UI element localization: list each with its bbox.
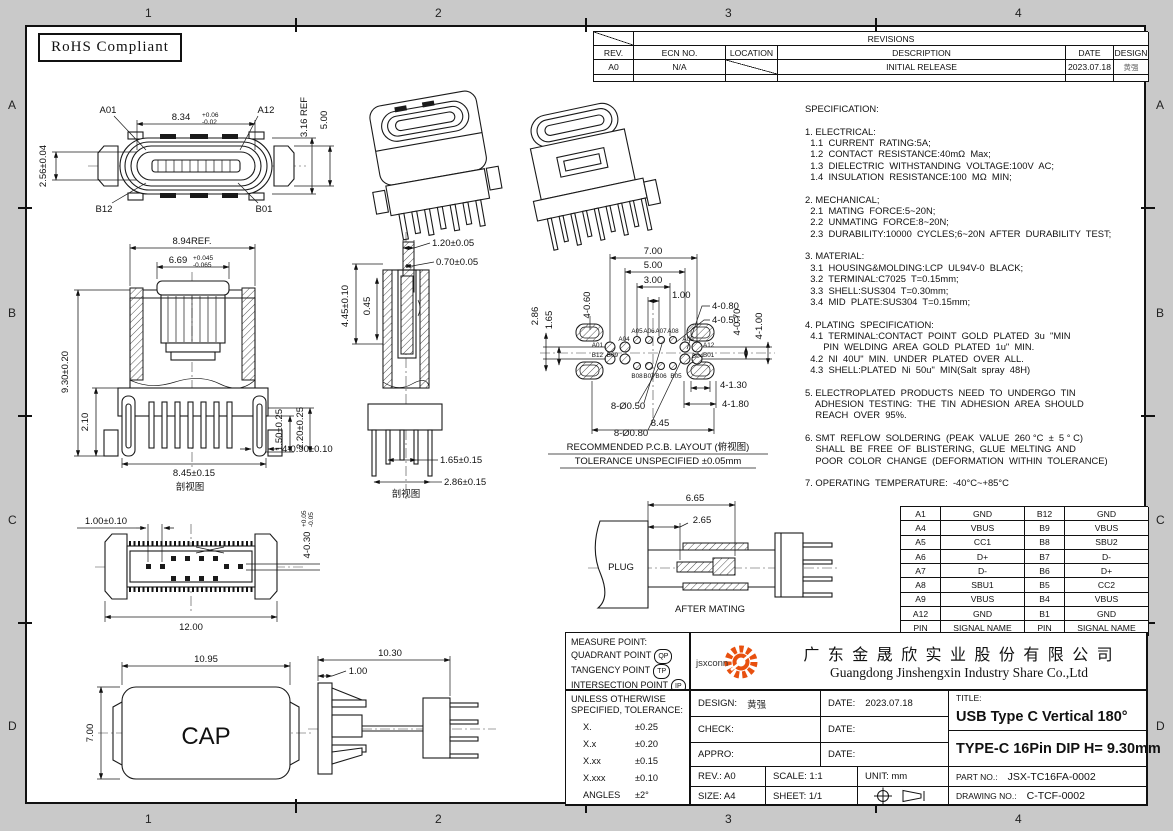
drawing-title-line1: USB Type C Vertical 180° (956, 709, 1128, 725)
date1-label: DATE: (828, 698, 855, 709)
title-label-cell: TITLE: (948, 690, 1148, 704)
zone-row-right-b: B (1156, 306, 1164, 320)
company-logo: jsxconn (695, 640, 767, 686)
revisions-title: REVISIONS (634, 32, 1149, 46)
zone-col-top-3: 3 (725, 6, 732, 20)
pin-cell: A1 (901, 507, 941, 521)
zone-col-bottom-1: 1 (145, 812, 152, 826)
tol-x: X. (571, 722, 635, 733)
revision-design: 黄强 (1114, 60, 1149, 75)
part-no-value: JSX-TC16FA-0002 (1008, 771, 1096, 783)
zone-row-left-b: B (8, 306, 16, 320)
zone-col-bottom-4: 4 (1015, 812, 1022, 826)
zone-row-left-c: C (8, 513, 17, 527)
drawing-no-label: DRAWING NO.: (956, 791, 1017, 801)
zone-row-right-d: D (1156, 719, 1165, 733)
revisions-header-date: DATE (1066, 46, 1114, 60)
border-tick (295, 18, 297, 32)
border-tick (18, 207, 32, 209)
revision-location (726, 60, 778, 75)
date2-label: DATE: (828, 724, 855, 735)
pin-cell: A4 (901, 521, 941, 535)
drawing-title-line2: TYPE-C 16Pin DIP H= 9.30mm (956, 741, 1161, 757)
pin-cell: A12 (901, 607, 941, 621)
zone-col-top-2: 2 (435, 6, 442, 20)
scale-value: SCALE: 1:1 (773, 771, 823, 782)
appro-label: APPRO: (698, 749, 734, 760)
zone-row-right-c: C (1156, 513, 1165, 527)
pin-cell: A8 (901, 578, 941, 592)
sheet-cell: SHEET: 1/1 (765, 786, 857, 806)
design-label: DESIGN: (698, 698, 737, 709)
tol-xx: X.x (571, 739, 635, 750)
intersection-point-label: INTERSECTION POINT (571, 680, 668, 690)
rohs-badge: RoHS Compliant (38, 33, 182, 62)
tol-xx-val: ±0.20 (635, 739, 658, 750)
check-cell: CHECK: (690, 716, 820, 742)
border-tick (585, 18, 587, 32)
date2-cell: DATE: (820, 716, 948, 742)
border-tick (295, 799, 297, 813)
revision-date: 2023.07.18 (1066, 60, 1114, 75)
pin-cell: A9 (901, 593, 941, 607)
zone-col-bottom-3: 3 (725, 812, 732, 826)
date3-label: DATE: (828, 749, 855, 760)
zone-col-bottom-2: 2 (435, 812, 442, 826)
border-tick (18, 622, 32, 624)
drawing-sheet: 1 2 3 4 1 2 3 4 A B C D A B C D .ol{fill… (0, 0, 1173, 831)
measure-point-title: MEASURE POINT: (571, 636, 689, 649)
revision-description: INITIAL RELEASE (778, 60, 1066, 75)
zone-row-right-a: A (1156, 98, 1164, 112)
tol-x-val: ±0.25 (635, 722, 658, 733)
pin-assignment-table: A1GNDB12GND A4VBUSB9VBUS A5CC1B8SBU2 A6D… (900, 506, 1148, 636)
zone-col-top-4: 4 (1015, 6, 1022, 20)
tol-xxx-val: ±0.15 (635, 756, 658, 767)
title-label: TITLE: (956, 693, 982, 703)
design-cell: DESIGN: 黄强 (690, 690, 820, 716)
projection-cell (857, 786, 948, 806)
scale-cell: SCALE: 1:1 (765, 766, 857, 786)
tol-xxxx-val: ±0.10 (635, 773, 658, 784)
zone-row-left-d: D (8, 719, 17, 733)
date1-cell: DATE: 2023.07.18 (820, 690, 948, 716)
revisions-header-location: LOCATION (726, 46, 778, 60)
rev-value: REV.: A0 (698, 771, 736, 782)
revision-rev: A0 (594, 60, 634, 75)
tangency-point-label: TANGENCY POINT (571, 665, 650, 675)
sheet-value: SHEET: 1/1 (773, 791, 822, 802)
company-name-en: Guangdong Jinshengxin Industry Share Co.… (771, 665, 1147, 681)
part-no-label: PART NO.: (956, 772, 998, 782)
company-name-cn: 广 东 金 晟 欣 实 业 股 份 有 限 公 司 (771, 641, 1147, 665)
unit-cell: UNIT: mm (857, 766, 948, 786)
part-no-cell: PART NO.: JSX-TC16FA-0002 (948, 766, 1148, 786)
date1-value: 2023.07.18 (865, 698, 913, 709)
date3-cell: DATE: (820, 742, 948, 766)
title-line1-cell: USB Type C Vertical 180° (948, 704, 1148, 730)
tolerance-header-2: SPECIFIED, TOLERANCE: (571, 705, 689, 716)
logo-text: jsxconn (695, 658, 728, 669)
rev-cell: REV.: A0 (690, 766, 765, 786)
border-tick (875, 18, 877, 32)
specification-text: SPECIFICATION: 1. ELECTRICAL: 1.1 CURREN… (805, 103, 1153, 489)
revision-ecn: N/A (634, 60, 726, 75)
zone-row-left-a: A (8, 98, 16, 112)
projection-symbol-icon (871, 787, 935, 805)
revision-empty-cell (594, 75, 634, 82)
border-tick (18, 415, 32, 417)
size-cell: SIZE: A4 (690, 786, 765, 806)
revisions-header-description: DESCRIPTION (778, 46, 1066, 60)
qp-badge: QP (654, 649, 672, 664)
appro-cell: APPRO: (690, 742, 820, 766)
tol-xxx: X.xx (571, 756, 635, 767)
design-value: 黄强 (747, 697, 766, 711)
unit-value: UNIT: mm (865, 771, 907, 782)
tolerance-header-1: UNLESS OTHERWISE (571, 694, 689, 705)
measure-point-block: MEASURE POINT: QUADRANT POINTQP TANGENCY… (565, 632, 690, 690)
tol-xxxx: X.xxx (571, 773, 635, 784)
title-line2-cell: TYPE-C 16Pin DIP H= 9.30mm (948, 730, 1148, 766)
revisions-header-ecn: ECN NO. (634, 46, 726, 60)
quadrant-point-label: QUADRANT POINT (571, 650, 651, 660)
size-value: SIZE: A4 (698, 791, 736, 802)
tp-badge: TP (653, 664, 670, 679)
revisions-header-design: DESIGN (1114, 46, 1149, 60)
check-label: CHECK: (698, 724, 734, 735)
tol-angles-val: ±2° (635, 790, 649, 801)
tol-angles: ANGLES (571, 790, 635, 801)
revisions-header-rev: REV. (594, 46, 634, 60)
zone-col-top-1: 1 (145, 6, 152, 20)
revisions-table: REVISIONS REV. ECN NO. LOCATION DESCRIPT… (593, 31, 1148, 82)
tolerance-block: UNLESS OTHERWISE SPECIFIED, TOLERANCE: X… (565, 690, 690, 806)
pin-cell: A5 (901, 536, 941, 550)
drawing-no-value: C-TCF-0002 (1027, 790, 1085, 802)
pin-cell: A6 (901, 550, 941, 564)
drawing-no-cell: DRAWING NO.: C-TCF-0002 (948, 786, 1148, 806)
revisions-corner (594, 32, 634, 46)
pin-cell: A7 (901, 564, 941, 578)
